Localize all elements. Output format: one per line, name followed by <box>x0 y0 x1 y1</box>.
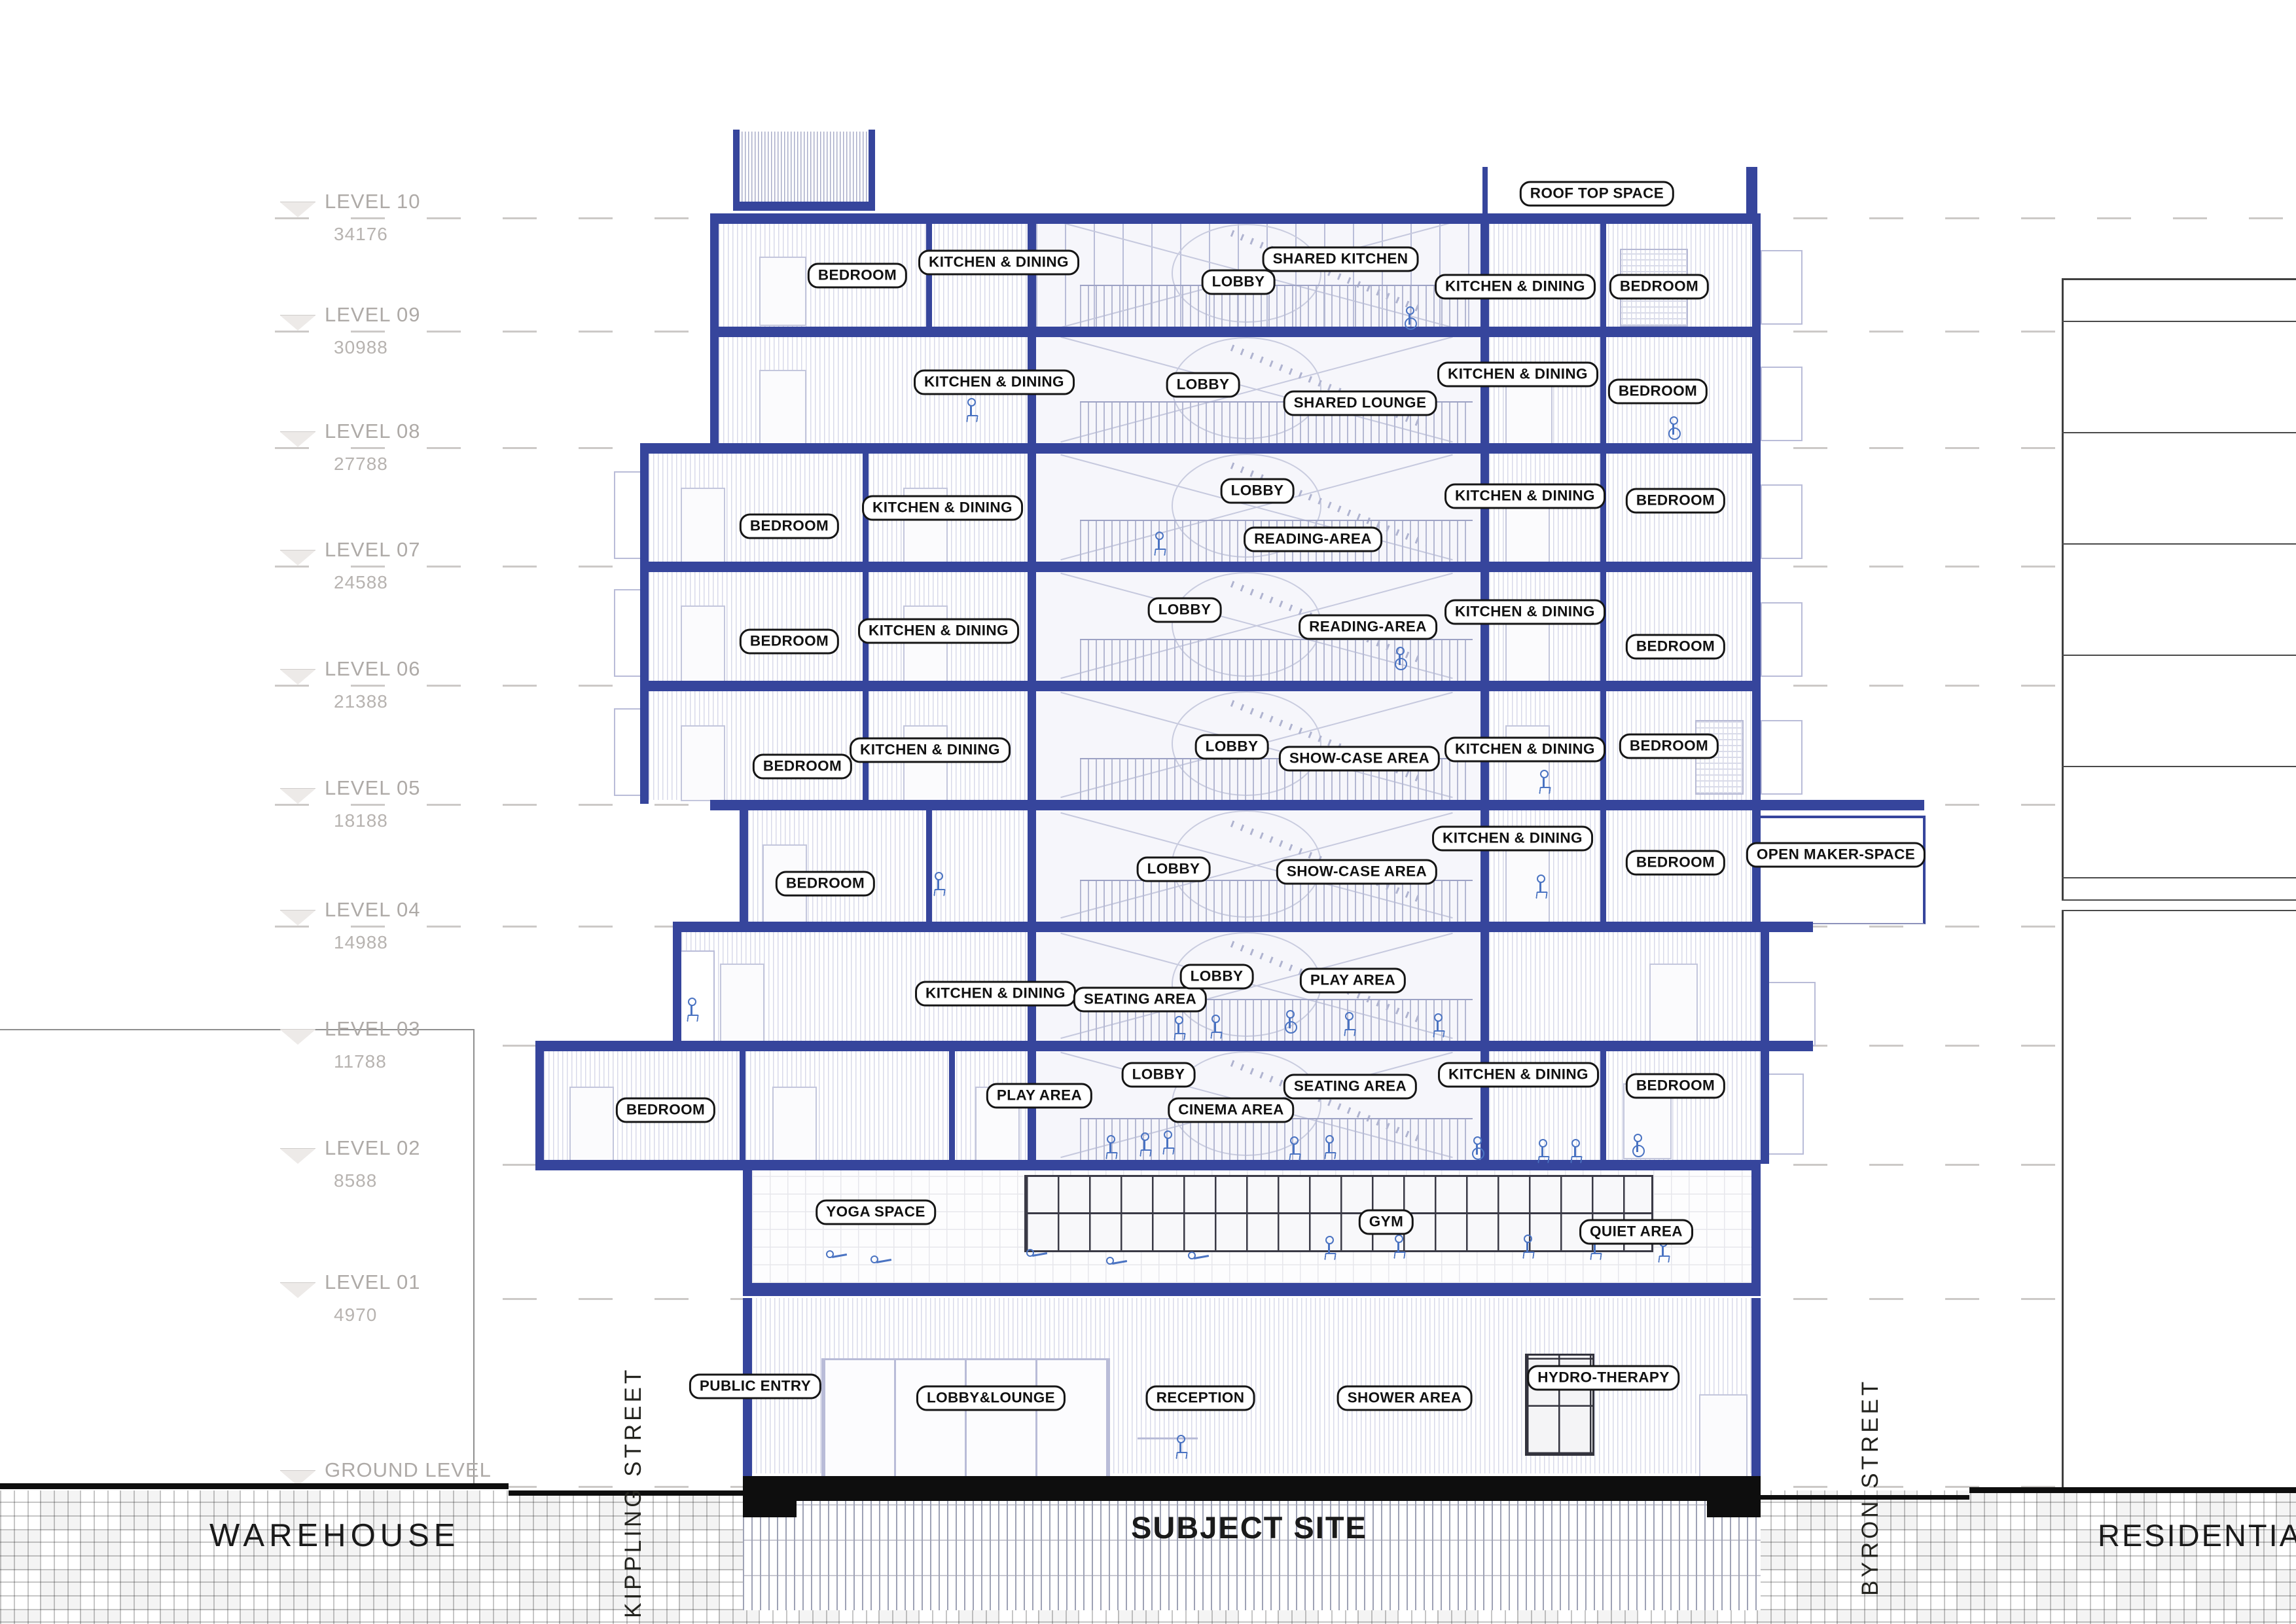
room-label-pill: KITCHEN & DINING <box>1435 274 1596 300</box>
level-elevation: 21388 <box>334 691 388 712</box>
roof-hatch <box>735 132 869 202</box>
level-elevation: 34176 <box>334 224 388 245</box>
room-label-pill: BEDROOM <box>1609 274 1709 300</box>
level-elevation: 11788 <box>334 1051 387 1072</box>
room-label-pill: KITCHEN & DINING <box>1444 737 1605 763</box>
yoga-figure <box>1026 1248 1049 1259</box>
residential-tower-label: RESIDENTIAL T <box>2098 1517 2296 1553</box>
reception-desk <box>1138 1437 1198 1439</box>
person-figure <box>1105 1135 1115 1159</box>
level-elevation: 24588 <box>334 572 388 593</box>
wall <box>1761 926 1769 1045</box>
wall <box>1751 1298 1761 1476</box>
level-marker-icon <box>280 1149 315 1164</box>
tower-floor-line <box>2062 766 2296 767</box>
level-marker-icon <box>280 911 315 926</box>
wall <box>1600 1045 1606 1164</box>
level-elevation: 27788 <box>334 454 388 475</box>
room-label-pill: LOBBY <box>1202 270 1276 295</box>
room-label-pill: KITCHEN & DINING <box>1438 1062 1599 1088</box>
person-figure <box>1522 1235 1532 1258</box>
room-label-pill: KITCHEN & DINING <box>915 981 1076 1007</box>
level-marker-icon <box>280 670 315 685</box>
yoga-figure <box>826 1249 848 1261</box>
room-label-pill: BEDROOM <box>1626 634 1725 660</box>
level-name: LEVEL 10 <box>325 190 420 213</box>
room-label-pill: SHARED LOUNGE <box>1283 391 1437 416</box>
wall <box>1600 804 1606 926</box>
room-label-pill: KITCHEN & DINING <box>1444 484 1605 509</box>
wheelchair-figure <box>1471 1136 1482 1160</box>
yoga-figure <box>1188 1250 1210 1262</box>
level-name: LEVEL 07 <box>325 538 420 562</box>
wall <box>640 447 649 566</box>
level-name: LEVEL 04 <box>325 898 420 922</box>
room-label-pill: HYDRO-THERAPY <box>1527 1365 1679 1391</box>
level-name: GROUND LEVEL <box>325 1458 492 1482</box>
floor-slab <box>743 1283 1761 1296</box>
room-label-pill: PLAY AREA <box>1300 968 1406 994</box>
entry-glazing <box>821 1358 1110 1479</box>
wall <box>1746 167 1757 213</box>
wall <box>1028 685 1036 804</box>
person-figure <box>1393 1235 1403 1258</box>
wall <box>1028 804 1036 926</box>
level-elevation: 18188 <box>334 810 388 831</box>
wall <box>673 926 681 1045</box>
person-figure <box>965 398 976 422</box>
wall <box>1028 566 1036 685</box>
door <box>903 605 948 683</box>
floor-slab <box>640 443 1761 454</box>
wheelchair-figure <box>1404 306 1414 330</box>
room-label-pill: BEDROOM <box>808 263 907 289</box>
room-label-pill: KITCHEN & DINING <box>1437 362 1598 388</box>
person-figure <box>1537 1139 1547 1163</box>
warehouse-label: WAREHOUSE <box>209 1517 459 1554</box>
level-name: LEVEL 01 <box>325 1271 420 1294</box>
wheelchair-figure <box>1394 647 1405 670</box>
room-label-pill: READING-AREA <box>1244 527 1382 552</box>
kippling-street-label: KIPPLING STREET <box>620 1341 647 1618</box>
room-label-pill: BEDROOM <box>1626 488 1725 514</box>
ground-line-residential <box>1969 1487 2296 1493</box>
room-label-pill: BEDROOM <box>740 514 839 539</box>
door <box>759 257 806 326</box>
person-figure <box>1432 1013 1443 1037</box>
wall <box>1752 447 1761 566</box>
wall <box>1028 447 1036 566</box>
tower-floor-line <box>2062 877 2296 878</box>
wall <box>1480 566 1489 685</box>
room-label-pill: QUIET AREA <box>1579 1219 1693 1245</box>
room-label-pill: SHOW-CASE AREA <box>1276 859 1437 885</box>
wall <box>743 1164 752 1287</box>
footing-left <box>743 1500 797 1517</box>
door <box>681 488 725 564</box>
tower-floor-line <box>2062 655 2296 656</box>
wall <box>740 804 748 926</box>
door <box>681 605 725 683</box>
atrium-railing <box>1080 639 1473 683</box>
ground-line-warehouse <box>0 1483 509 1489</box>
wheelchair-figure <box>1668 416 1678 440</box>
wheelchair-figure <box>1284 1010 1295 1034</box>
byron-street-label: BYRON STREET <box>1857 1393 1884 1596</box>
wall <box>1752 685 1761 804</box>
door <box>1699 1394 1748 1481</box>
floor-slab <box>733 202 875 211</box>
footing-right <box>1707 1500 1761 1517</box>
person-figure <box>1210 1015 1220 1038</box>
wall <box>535 1045 544 1164</box>
level-name: LEVEL 05 <box>325 776 420 800</box>
room-label-pill: BEDROOM <box>753 754 852 780</box>
tower-floor-line <box>2062 432 2296 433</box>
level-marker-icon <box>280 432 315 447</box>
floor-slab <box>673 922 1813 932</box>
person-figure <box>1323 1236 1334 1259</box>
room-label-pill: SHOW-CASE AREA <box>1279 746 1440 772</box>
room-label-pill: LOBBY <box>1180 964 1254 990</box>
wall <box>1480 331 1489 447</box>
wall <box>640 566 649 685</box>
door <box>903 725 948 801</box>
balcony <box>1761 367 1803 441</box>
room-label-pill: SHOWER AREA <box>1337 1386 1473 1411</box>
person-figure <box>1535 875 1545 898</box>
person-figure <box>1323 1135 1334 1159</box>
gym-glazing <box>1024 1175 1653 1252</box>
level-elevation: 14988 <box>334 932 388 953</box>
yoga-figure <box>1106 1255 1128 1267</box>
level-marker-icon <box>280 1283 315 1298</box>
room-label-pill: LOBBY <box>1137 857 1211 882</box>
room-label-pill: YOGA SPACE <box>816 1200 936 1225</box>
door <box>569 1087 614 1161</box>
room-label-pill: BEDROOM <box>1626 1074 1725 1099</box>
tower-floor-line <box>2062 543 2296 545</box>
room-label-pill: LOBBY <box>1122 1062 1196 1088</box>
wall <box>869 130 875 211</box>
person-figure <box>1175 1435 1185 1458</box>
floor-slab <box>710 800 1924 810</box>
level-marker-icon <box>280 550 315 566</box>
room-label-pill: KITCHEN & DINING <box>850 738 1011 763</box>
room-label-pill: SEATING AREA <box>1283 1074 1417 1100</box>
room-label-pill: LOBBY <box>1221 478 1295 504</box>
balcony <box>1761 720 1803 795</box>
room-label-pill: PLAY AREA <box>986 1083 1092 1109</box>
person-figure <box>1343 1012 1354 1036</box>
room-label-pill: LOBBY <box>1195 734 1269 760</box>
room-label-pill: CINEMA AREA <box>1168 1098 1294 1123</box>
door <box>681 725 725 801</box>
wall <box>640 685 649 804</box>
floor-slab <box>535 1041 1813 1051</box>
tower-balcony-band <box>2062 899 2296 911</box>
wall <box>710 331 719 447</box>
wall <box>1480 926 1489 1045</box>
level-marker-icon <box>280 202 315 217</box>
person-figure <box>1139 1132 1149 1156</box>
balcony <box>1761 250 1803 325</box>
room-label-pill: LOBBY <box>1148 598 1222 623</box>
atrium-railing <box>1080 880 1473 924</box>
floor-slab <box>640 681 1761 691</box>
room-label-pill: KITCHEN & DINING <box>1432 826 1593 852</box>
level-name: LEVEL 09 <box>325 303 420 327</box>
room-label-pill: LOBBY <box>1166 372 1240 398</box>
room-label-pill: SEATING AREA <box>1073 987 1207 1013</box>
wheelchair-figure <box>1632 1134 1642 1157</box>
room-label-pill: LOBBY&LOUNGE <box>916 1386 1066 1411</box>
wall <box>1751 1164 1761 1287</box>
yoga-figure <box>870 1254 893 1266</box>
wall <box>710 217 719 331</box>
person-figure <box>1173 1016 1183 1039</box>
room-label-pill: KITCHEN & DINING <box>862 496 1023 521</box>
room-label-pill: KITCHEN & DINING <box>914 370 1075 395</box>
warehouse-outline <box>0 1029 475 1489</box>
room-label-pill: SHARED KITCHEN <box>1263 247 1419 272</box>
level-marker-icon <box>280 789 315 804</box>
balcony <box>1767 982 1816 1046</box>
wall-hatch <box>1489 926 1761 1041</box>
wall <box>949 1045 955 1164</box>
room-label-pill: BEDROOM <box>1608 379 1708 405</box>
door <box>772 1087 817 1161</box>
wall <box>1761 1045 1769 1164</box>
door <box>720 964 764 1042</box>
level-elevation: 4970 <box>334 1305 377 1326</box>
room-label-pill: OPEN MAKER-SPACE <box>1746 842 1926 868</box>
room-label-pill: KITCHEN & DINING <box>918 250 1079 276</box>
room-label-pill: PUBLIC ENTRY <box>689 1374 821 1399</box>
room-label-pill: GYM <box>1359 1210 1414 1235</box>
floor-slab <box>640 562 1761 572</box>
room-label-pill: BEDROOM <box>740 629 839 655</box>
person-figure <box>1288 1136 1299 1160</box>
section-drawing: WAREHOUSE SUBJECT SITE RESIDENTIAL T KIP… <box>0 0 2296 1624</box>
level-elevation: 30988 <box>334 337 388 358</box>
wall <box>733 130 740 211</box>
wall <box>1482 167 1488 213</box>
room-label-pill: ROOF TOP SPACE <box>1520 181 1674 207</box>
wall <box>1600 331 1606 447</box>
wall <box>926 804 932 926</box>
balcony <box>1761 602 1803 677</box>
person-figure <box>1538 770 1549 793</box>
level-elevation: 8588 <box>334 1170 377 1191</box>
person-figure <box>686 998 696 1021</box>
room-label-pill: KITCHEN & DINING <box>1444 600 1605 625</box>
person-figure <box>1162 1130 1172 1154</box>
wall <box>1752 566 1761 685</box>
room-label-pill: RECEPTION <box>1146 1386 1255 1411</box>
person-figure <box>1153 532 1164 555</box>
ground-slab <box>743 1476 1761 1501</box>
room-label-pill: BEDROOM <box>1619 734 1719 759</box>
door <box>759 370 806 446</box>
balcony <box>1761 484 1803 559</box>
wall <box>1600 566 1606 685</box>
level-name: LEVEL 06 <box>325 657 420 681</box>
level-name: LEVEL 02 <box>325 1136 420 1160</box>
maker-space-terrace <box>1761 816 1926 924</box>
tower-floor-line <box>2062 321 2296 322</box>
residential-tower-outline <box>2062 278 2296 1494</box>
wall <box>1480 804 1489 926</box>
room-label-pill: BEDROOM <box>1626 850 1725 876</box>
person-figure <box>933 872 943 895</box>
room-label-pill: BEDROOM <box>776 871 875 897</box>
door <box>1649 964 1698 1042</box>
person-figure <box>1570 1139 1580 1163</box>
room-label-pill: BEDROOM <box>616 1098 715 1123</box>
wall <box>740 1045 745 1164</box>
room-label-pill: KITCHEN & DINING <box>858 619 1019 644</box>
level-name: LEVEL 03 <box>325 1017 420 1041</box>
level-marker-icon <box>280 1030 315 1045</box>
level-marker-icon <box>280 316 315 331</box>
wall <box>1752 217 1761 331</box>
wall <box>1600 217 1606 331</box>
subject-site-label: SUBJECT SITE <box>1131 1509 1367 1545</box>
wall <box>1752 331 1761 447</box>
level-name: LEVEL 08 <box>325 420 420 443</box>
room-label-pill: READING-AREA <box>1299 615 1437 640</box>
